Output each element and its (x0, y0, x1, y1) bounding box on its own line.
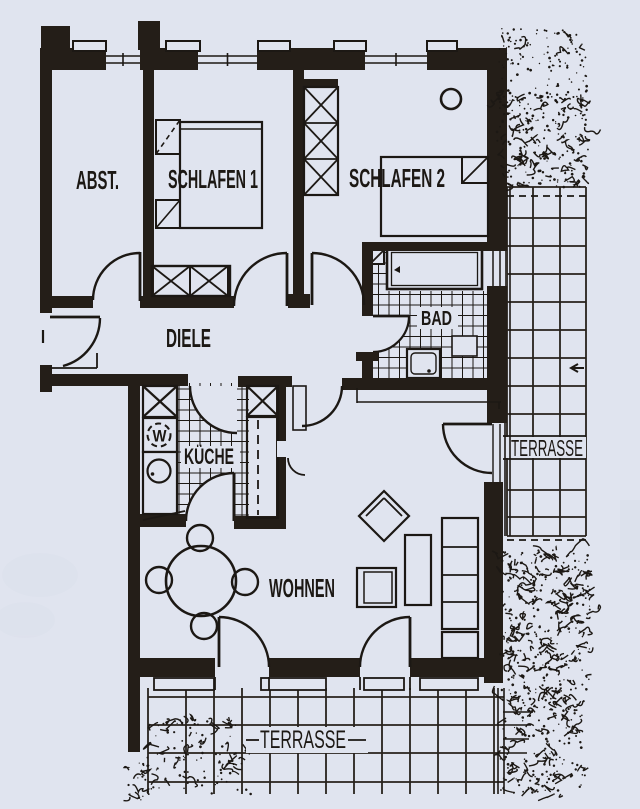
svg-text:TERRASSE: TERRASSE (511, 435, 583, 461)
svg-text:SCHLAFEN 1: SCHLAFEN 1 (168, 164, 258, 194)
svg-text:WOHNEN: WOHNEN (269, 573, 335, 603)
svg-text:BAD: BAD (421, 308, 452, 330)
svg-text:KÜCHE: KÜCHE (184, 444, 234, 469)
svg-text:DIELE: DIELE (166, 323, 211, 353)
svg-text:ABST.: ABST. (76, 165, 119, 195)
svg-text:TERRASSE: TERRASSE (260, 726, 346, 754)
svg-text:W: W (153, 427, 168, 446)
svg-text:SCHLAFEN 2: SCHLAFEN 2 (349, 163, 445, 193)
